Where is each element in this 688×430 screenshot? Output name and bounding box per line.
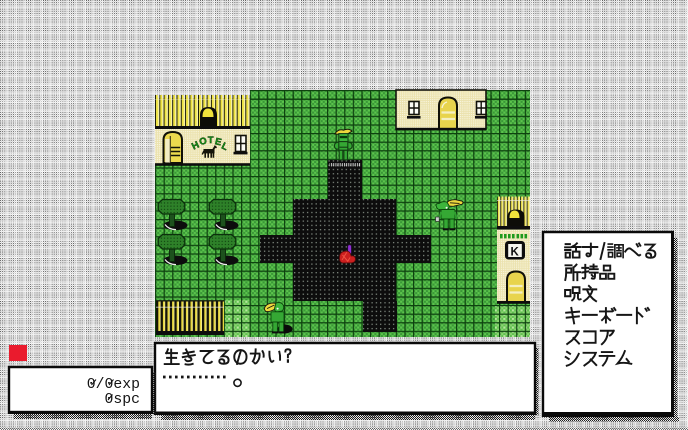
- svg-text:K: K: [511, 247, 520, 259]
- svg-text:0spc: 0spc: [104, 392, 140, 408]
- svg-text:T: T: [208, 135, 214, 146]
